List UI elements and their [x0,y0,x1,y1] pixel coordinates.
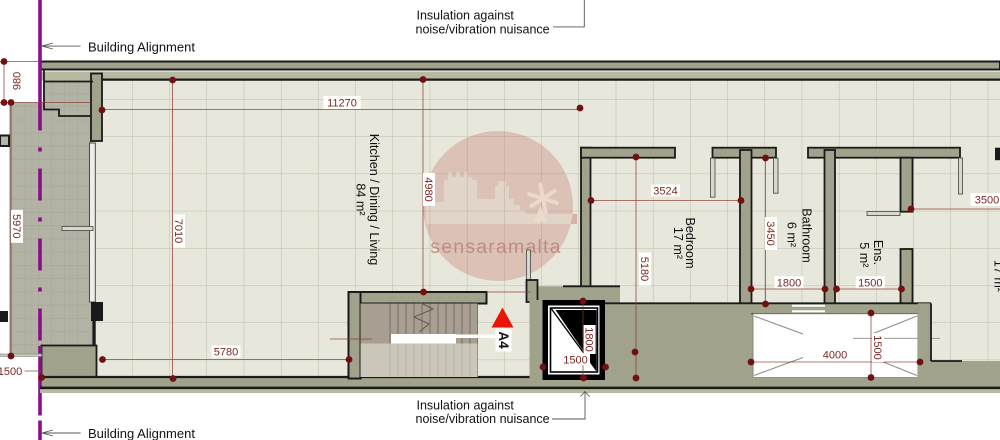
svg-text:5780: 5780 [214,347,238,359]
svg-text:Kitchen / Dining / Living: Kitchen / Dining / Living [367,134,381,266]
svg-text:6 m²: 6 m² [785,222,799,247]
svg-text:A4: A4 [496,331,511,349]
svg-text:1800: 1800 [583,327,595,351]
svg-text:980: 980 [12,72,24,90]
svg-text:1800: 1800 [777,277,801,289]
svg-text:1500: 1500 [563,354,587,366]
svg-text:11270: 11270 [327,98,357,110]
svg-text:sensaramalta: sensaramalta [430,236,561,258]
svg-text:7010: 7010 [172,219,184,243]
svg-text:1500: 1500 [871,335,883,359]
svg-text:3450: 3450 [764,221,776,245]
svg-text:Ens.: Ens. [871,240,885,265]
svg-text:4000: 4000 [823,350,847,362]
svg-text:17 m²: 17 m² [671,227,685,259]
svg-text:Insulation against: Insulation against [417,399,515,413]
svg-text:Building Alignment: Building Alignment [88,40,195,55]
svg-text:noise/vibration nuisance: noise/vibration nuisance [416,22,550,36]
svg-text:17 m²: 17 m² [992,260,1000,292]
svg-text:5180: 5180 [638,257,650,281]
svg-text:noise/vibration nuisance: noise/vibration nuisance [416,412,550,426]
svg-text:Building Alignment: Building Alignment [88,426,195,440]
svg-text:3500: 3500 [975,195,999,207]
svg-text:4980: 4980 [422,177,434,201]
svg-text:5970: 5970 [10,214,22,238]
svg-text:Insulation against: Insulation against [417,9,515,23]
svg-text:1500: 1500 [858,277,882,289]
svg-text:1500: 1500 [0,366,22,378]
svg-text:Bathroom: Bathroom [800,208,814,263]
svg-text:84 m²: 84 m² [354,183,368,215]
svg-text:5 m²: 5 m² [857,242,871,267]
svg-text:3524: 3524 [653,186,677,198]
